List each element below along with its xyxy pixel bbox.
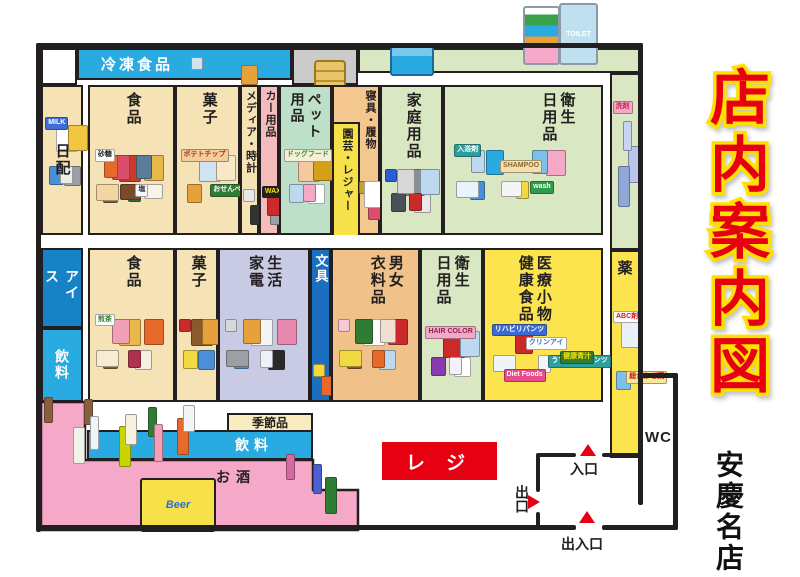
car-goods-items: WAX [262, 178, 277, 229]
register: レ ジ [382, 442, 497, 480]
stationery-items [313, 355, 329, 396]
bedding-items [358, 167, 376, 228]
pet-goods-label: ペット [307, 92, 322, 140]
exit-arrow-icon [528, 495, 540, 509]
section-hygiene-daily-top: 衛生日用品 入浴剤washSHAMPOO [443, 85, 603, 235]
food-top-label: 食品 [124, 92, 140, 126]
entrance-exit-label: 出入口 [561, 534, 603, 554]
section-pet-goods: ペット用品 ドッグフード [279, 85, 332, 235]
section-car-goods: カー用品 WAX [259, 85, 279, 235]
frozen-food-items [189, 52, 284, 76]
clothing-items [336, 298, 414, 396]
drinks-left-label: 飲料 [52, 349, 72, 381]
bedding-footwear-label: 寝具・履物 [363, 90, 375, 150]
home-appliances-items [224, 298, 305, 396]
section-medical-health: 医療小物健康食品 リハビリパンツうす型軽快パンツクリンアイDiet Foods健… [483, 248, 603, 402]
gray-band [292, 48, 358, 85]
snacks-top-label: 菓子 [200, 92, 216, 126]
hygiene-daily-mid-items: HAIR COLOR [424, 313, 478, 396]
cooler-box-icon [390, 46, 434, 76]
entrance-exit-arrow-icon [579, 511, 595, 523]
wall-wc-top [638, 373, 678, 378]
car-goods-label: カー用品 [263, 90, 275, 138]
store-map: 冷凍食品 TOILET 洗剤 薬 ABC剤総合かぜ薬 日配 MILK アイス 飲… [0, 0, 800, 577]
wall-vestibule-left-b [536, 512, 540, 530]
food-top-items: 砂糖塩 [93, 134, 169, 229]
section-ice-cream: アイス [41, 248, 83, 328]
page-title: 店内案内図 [688, 66, 782, 444]
wall-top [36, 43, 643, 48]
green-band-top: TOILET [358, 48, 643, 73]
snacks-mid-items [179, 298, 215, 396]
household-goods-items [384, 153, 438, 229]
toilet-pack-text: TOILET [566, 31, 591, 38]
snacks-top-items: ポテトチップおせんべい [179, 134, 235, 229]
page-title-text: 店内案内図 [692, 66, 779, 444]
food-mid-label: 食品 [124, 255, 140, 289]
section-hygiene-daily-mid: 衛生日用品 HAIR COLOR [420, 248, 483, 402]
section-daily-dairy: 日配 MILK [41, 85, 83, 235]
store-name-text: 安慶名店 [708, 450, 748, 576]
section-stationery: 文具 [310, 248, 331, 402]
snacks-mid-label: 菓子 [189, 255, 205, 289]
section-media-clocks: メディア・時計 [240, 85, 259, 235]
medical-health-label: 医療小物 [535, 255, 551, 323]
right-strip-detergent: 洗剤 [610, 73, 638, 250]
wall-vestibule-top-a [538, 453, 576, 457]
medicine-items: ABC剤総合かぜ薬 [613, 285, 638, 448]
sake-bottles-illustration [44, 386, 92, 492]
sake-label: お酒 [216, 467, 256, 487]
food-mid-items: 煎茶 [93, 298, 169, 396]
seasonal-label: 季節品 [252, 414, 288, 431]
frozen-food-band: 冷凍食品 [77, 48, 292, 80]
beer-case-text: Beer [166, 499, 190, 511]
entrance-arrow-icon [580, 444, 596, 456]
wall-vestibule-top-b [602, 453, 643, 457]
section-home-appliances: 生活家電 [218, 248, 310, 402]
beverage-bottles-illustration [84, 392, 236, 458]
daily-dairy-label: 日配 [52, 143, 73, 177]
toilet-paper-pack: TOILET [559, 3, 598, 65]
section-snacks-top: 菓子 ポテトチップおせんべい [175, 85, 240, 235]
section-food-top: 食品 砂糖塩 [88, 85, 175, 235]
hygiene-daily-mid-label: 衛生 [453, 255, 469, 306]
wall-right [638, 43, 643, 505]
stationery-label: 文具 [313, 254, 327, 284]
drinks-band-label: 飲料 [235, 435, 273, 455]
hygiene-daily-top-label: 衛生 [558, 92, 574, 143]
wine-bottles-illustration [286, 446, 350, 526]
wall-vestibule-left-a [536, 453, 540, 492]
beer-case-illustration: Beer [140, 478, 216, 532]
ice-cream-label: アイス [42, 269, 82, 307]
section-food-mid: 食品 煎茶 [88, 248, 175, 402]
section-bedding-footwear: 寝具・履物 園芸・レジャー [332, 85, 380, 235]
toilet-paper-pack-striped [523, 6, 560, 65]
section-garden-leisure: 園芸・レジャー [334, 122, 360, 235]
entrance-label: 入口 [570, 459, 598, 479]
wall-bottom-east [602, 525, 678, 530]
detergent-items: 洗剤 [613, 85, 638, 241]
frozen-food-label: 冷凍食品 [101, 54, 173, 75]
register-label: レ ジ [406, 448, 473, 475]
home-appliances-label: 生活 [265, 255, 281, 289]
store-name: 安慶名店 [702, 450, 754, 576]
clothing-label: 男女 [387, 255, 403, 306]
wall-left [36, 43, 41, 532]
right-strip-medicine: 薬 ABC剤総合かぜ薬 [610, 250, 638, 458]
section-snacks-mid: 菓子 [175, 248, 218, 402]
service-corner-cell [41, 48, 77, 85]
media-clocks-items [243, 178, 257, 229]
garden-leisure-label: 園芸・レジャー [340, 128, 352, 212]
wall-bottom-west [36, 525, 576, 530]
section-household-goods: 家庭用品 [380, 85, 443, 235]
wall-wc-right [673, 373, 678, 530]
household-goods-label: 家庭用品 [404, 92, 420, 160]
pet-goods-items: ドッグフード [283, 134, 328, 229]
section-clothing: 男女衣料品 [331, 248, 420, 402]
wc-label: WC [645, 429, 672, 446]
media-clocks-label: メディア・時計 [244, 90, 256, 174]
medicine-label: 薬 [617, 257, 632, 278]
